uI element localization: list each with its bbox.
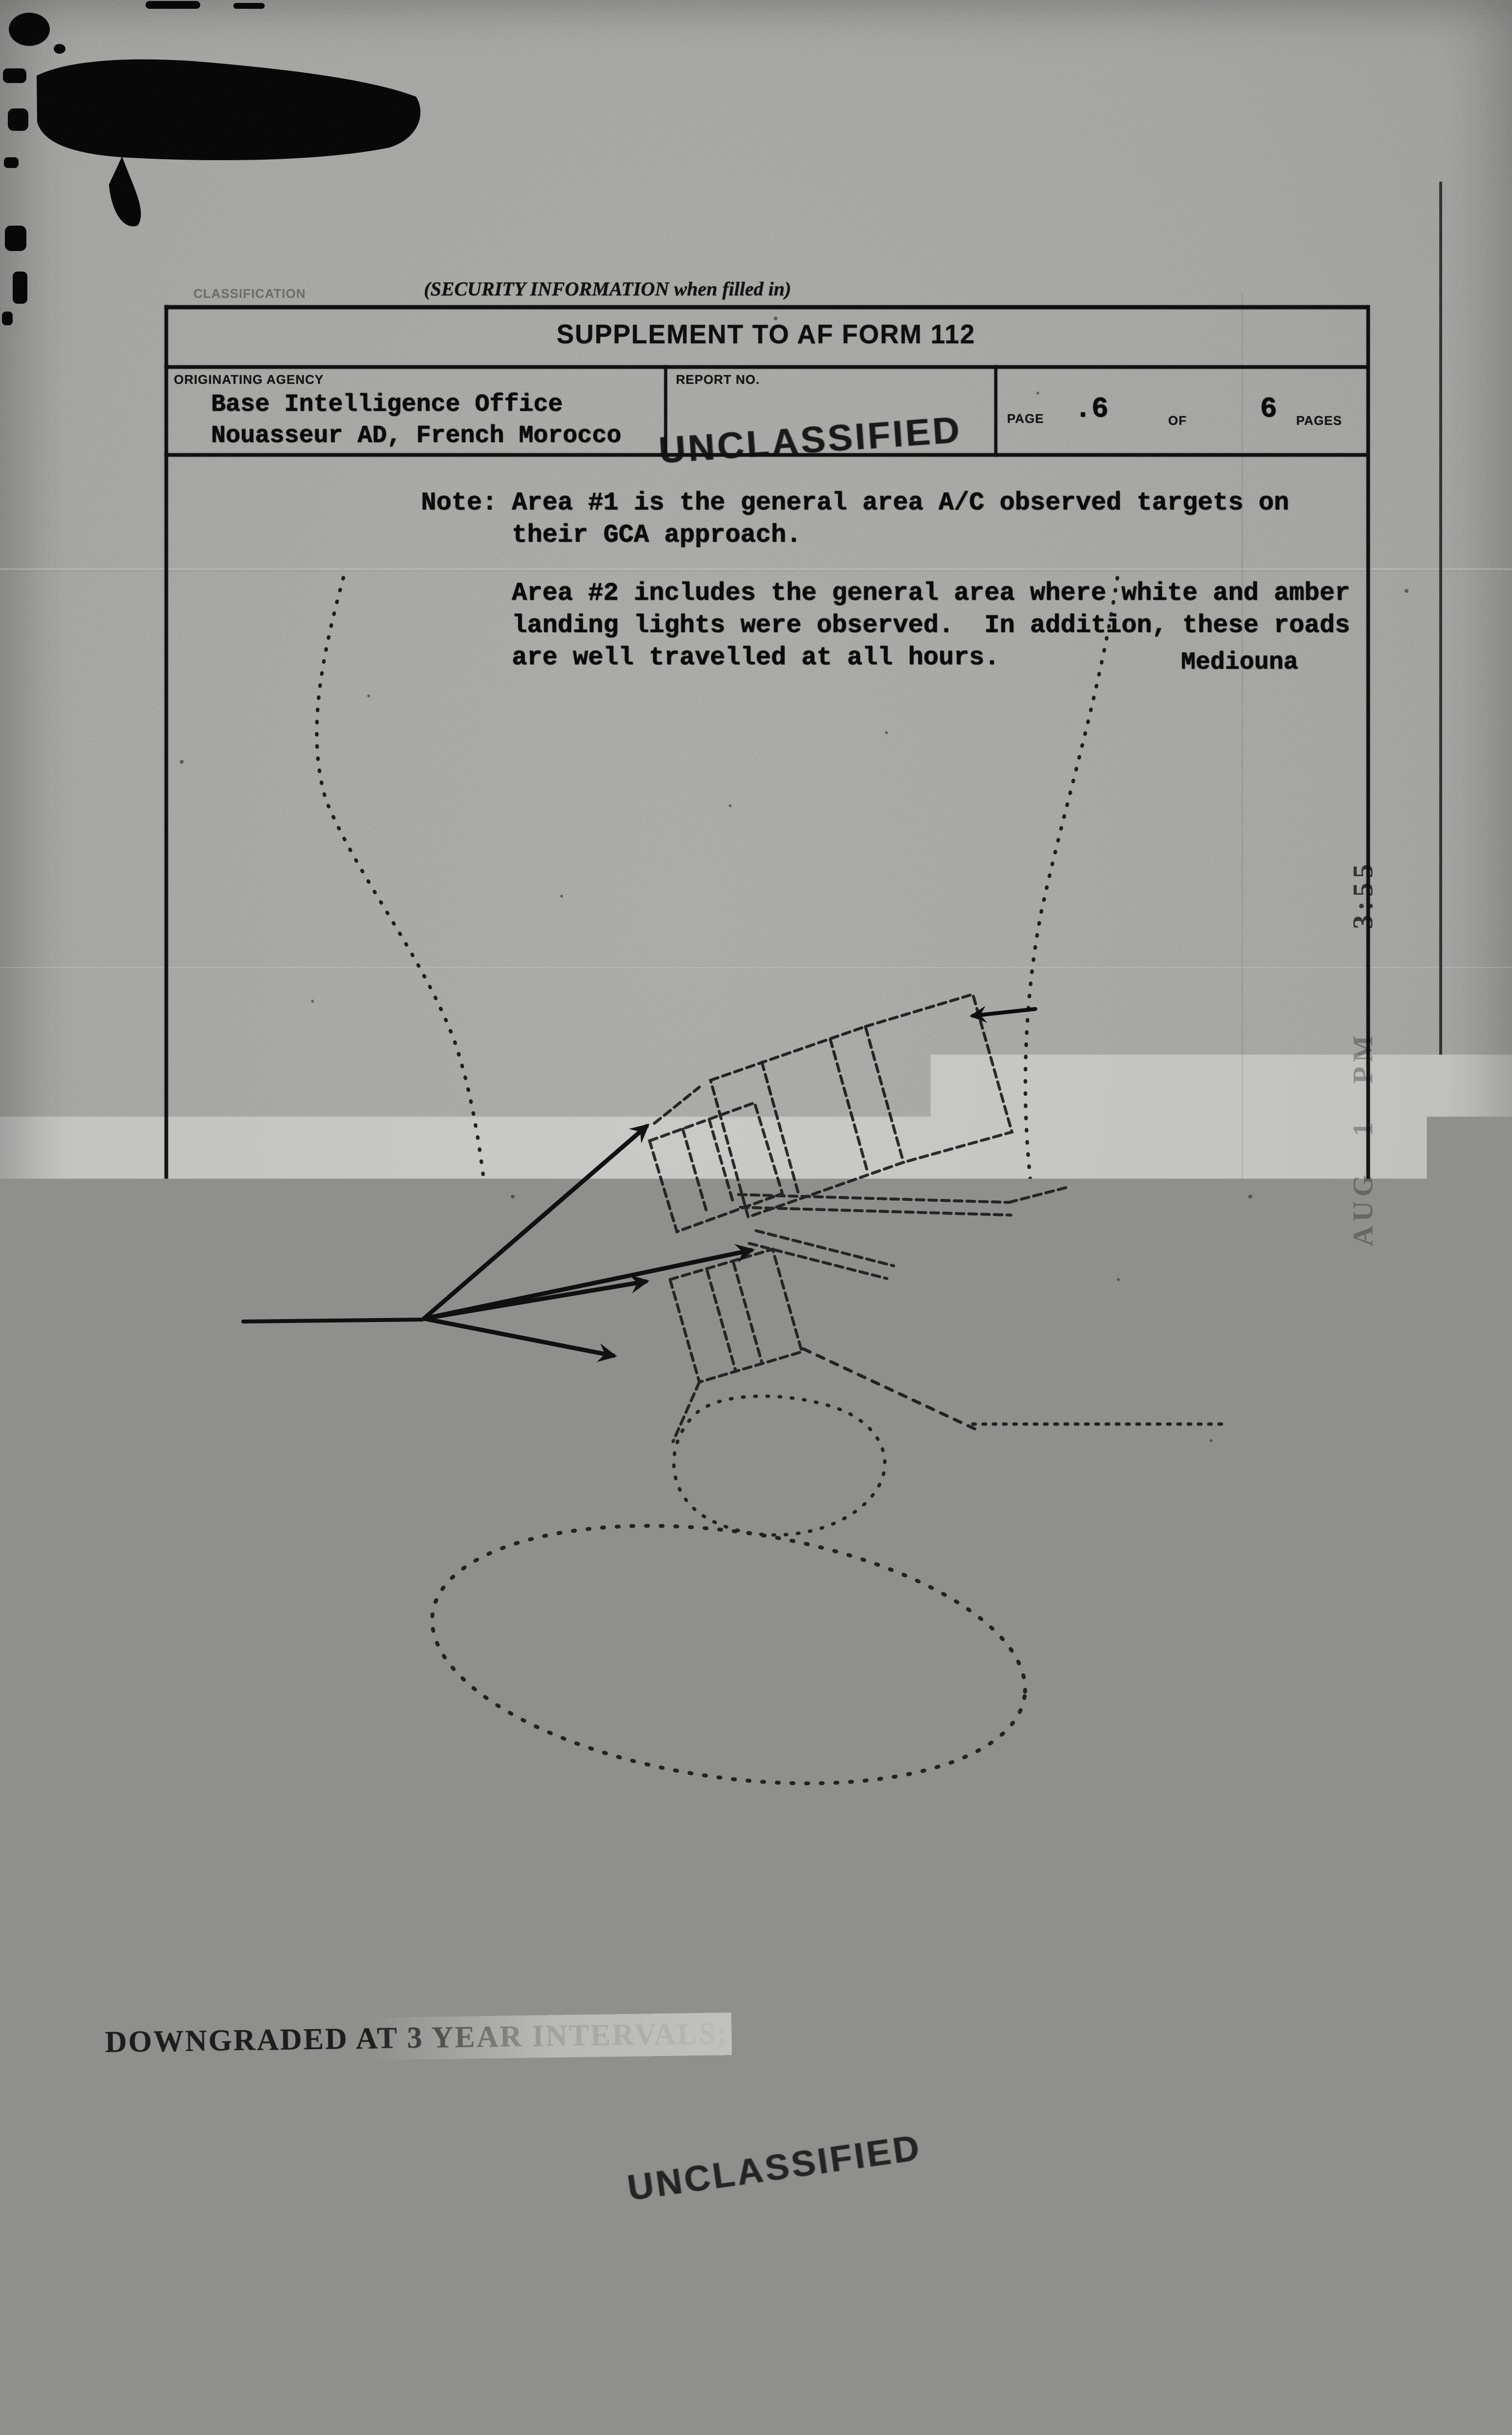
downgraded-stamp-line1: DOWNGRADED AT 3 YEAR INTERVALS; [105,2016,729,2060]
map-label-area1: Area #1 [583,1365,666,1472]
road-berrechid [698,1581,783,2063]
pages-count: 6 [1260,394,1277,425]
unclassified-stamp-top: UNCLASSIFIED [657,408,963,472]
area-outlines [416,1396,1042,1818]
security-note-top: (SECURITY INFORMATION when filled in) [424,277,791,300]
note-para1-line1: Area #1 is the general area A/C observed… [512,488,1289,517]
replaces-line2: WHICH MAY BE USED. [386,2338,537,2353]
footer-ink-blob [650,2328,997,2427]
note-para1-line2: their GCA approach. [512,521,801,549]
area2-outline [416,1491,1042,1818]
map-label-area2: Area #2 [575,1603,690,1634]
airfield-sketch [650,994,1070,1442]
horizontal-crease [0,568,1512,571]
form-number: 112a [289,2314,355,2345]
originating-agency-line2: Nouasseur AD, French Morocco [211,422,621,450]
pages-label: PAGES [1296,413,1342,428]
runway-label-underline [243,1320,422,1322]
top-left-ink-blob [2,1,420,325]
note-para2-line2: landing lights were observed. In additio… [512,611,1350,640]
road-right [1026,578,1199,1850]
north-letter: N [1174,1866,1192,1900]
replaces-line1: REPLACES AF FORM 112-PART II, 1 JUN 48, [386,2316,682,2331]
title-bottom-rule [165,365,1368,369]
bottom-scanner-band [0,2383,1512,2435]
area1-loop [674,1396,885,1535]
taxiway-spur-arrow [973,1009,1035,1016]
originating-agency-label: ORIGINATING AGENCY [174,372,324,387]
note-label: Note: [421,488,497,517]
north-arrow [1176,1903,1204,2067]
page-label: PAGE [1007,411,1044,426]
map-label-berrechid: Berrechid [716,2051,853,2080]
printing-office-text: U. S. GOVERNMENT PRINTING OFFICE [1072,2341,1325,2363]
map-label-control-tower: Control Tower [991,1391,1182,1419]
form-left-border [165,305,168,2300]
road-area2 [311,1466,1197,1708]
downgraded-stamp-line2: DECLASSIFIED AFTER 12 YEARS. [739,2092,1267,2134]
map-label-runway-length: (11,000') [256,1329,393,1358]
runway-pointer-arrows [243,1009,1035,1356]
control-tower-pointer [803,1349,979,1431]
roads [311,578,1199,2063]
received-time-faded: AUG 1 PM [1347,1031,1379,1246]
page-number: .6 [1074,394,1109,425]
of-label: OF [1168,413,1187,428]
scan-streak [0,967,1512,968]
scanned-document-page: (SECURITY INFORMATION when filled in) CL… [0,0,1512,2435]
received-time-dark: 3:55 [1347,860,1379,929]
received-time-stamp: AUG 1 PM 3:55 [1314,922,1358,1381]
page-edge-lines [1407,182,1441,2376]
scan-streak [0,1645,1512,1646]
report-page-divider [994,365,997,457]
classification-label-bottom: CLASSIFICATION [808,2316,921,2331]
report-no-label: REPORT NO. [676,372,760,387]
originating-agency-line1: Base Intelligence Office [211,391,563,419]
downgraded-stamp-line3: DOD DIR 5200.10 [1419,2170,1512,2208]
printing-office-code: 16—69479 [1299,2341,1365,2358]
note-para2-line3: are well travelled at all hours. [512,643,1000,672]
map-label-runway: Runway [249,1286,340,1315]
note-para2-line1: Area #2 includes the general area where … [512,579,1350,608]
map-label-mediouna: Mediouna [1181,649,1298,676]
classification-label-top: CLASSIFICATION [193,286,306,301]
form-title: SUPPLEMENT TO AF FORM 112 [183,318,1349,350]
form-top-border [165,305,1368,309]
unclassified-stamp-bottom: UNCLASSIFIED [625,2126,924,2209]
